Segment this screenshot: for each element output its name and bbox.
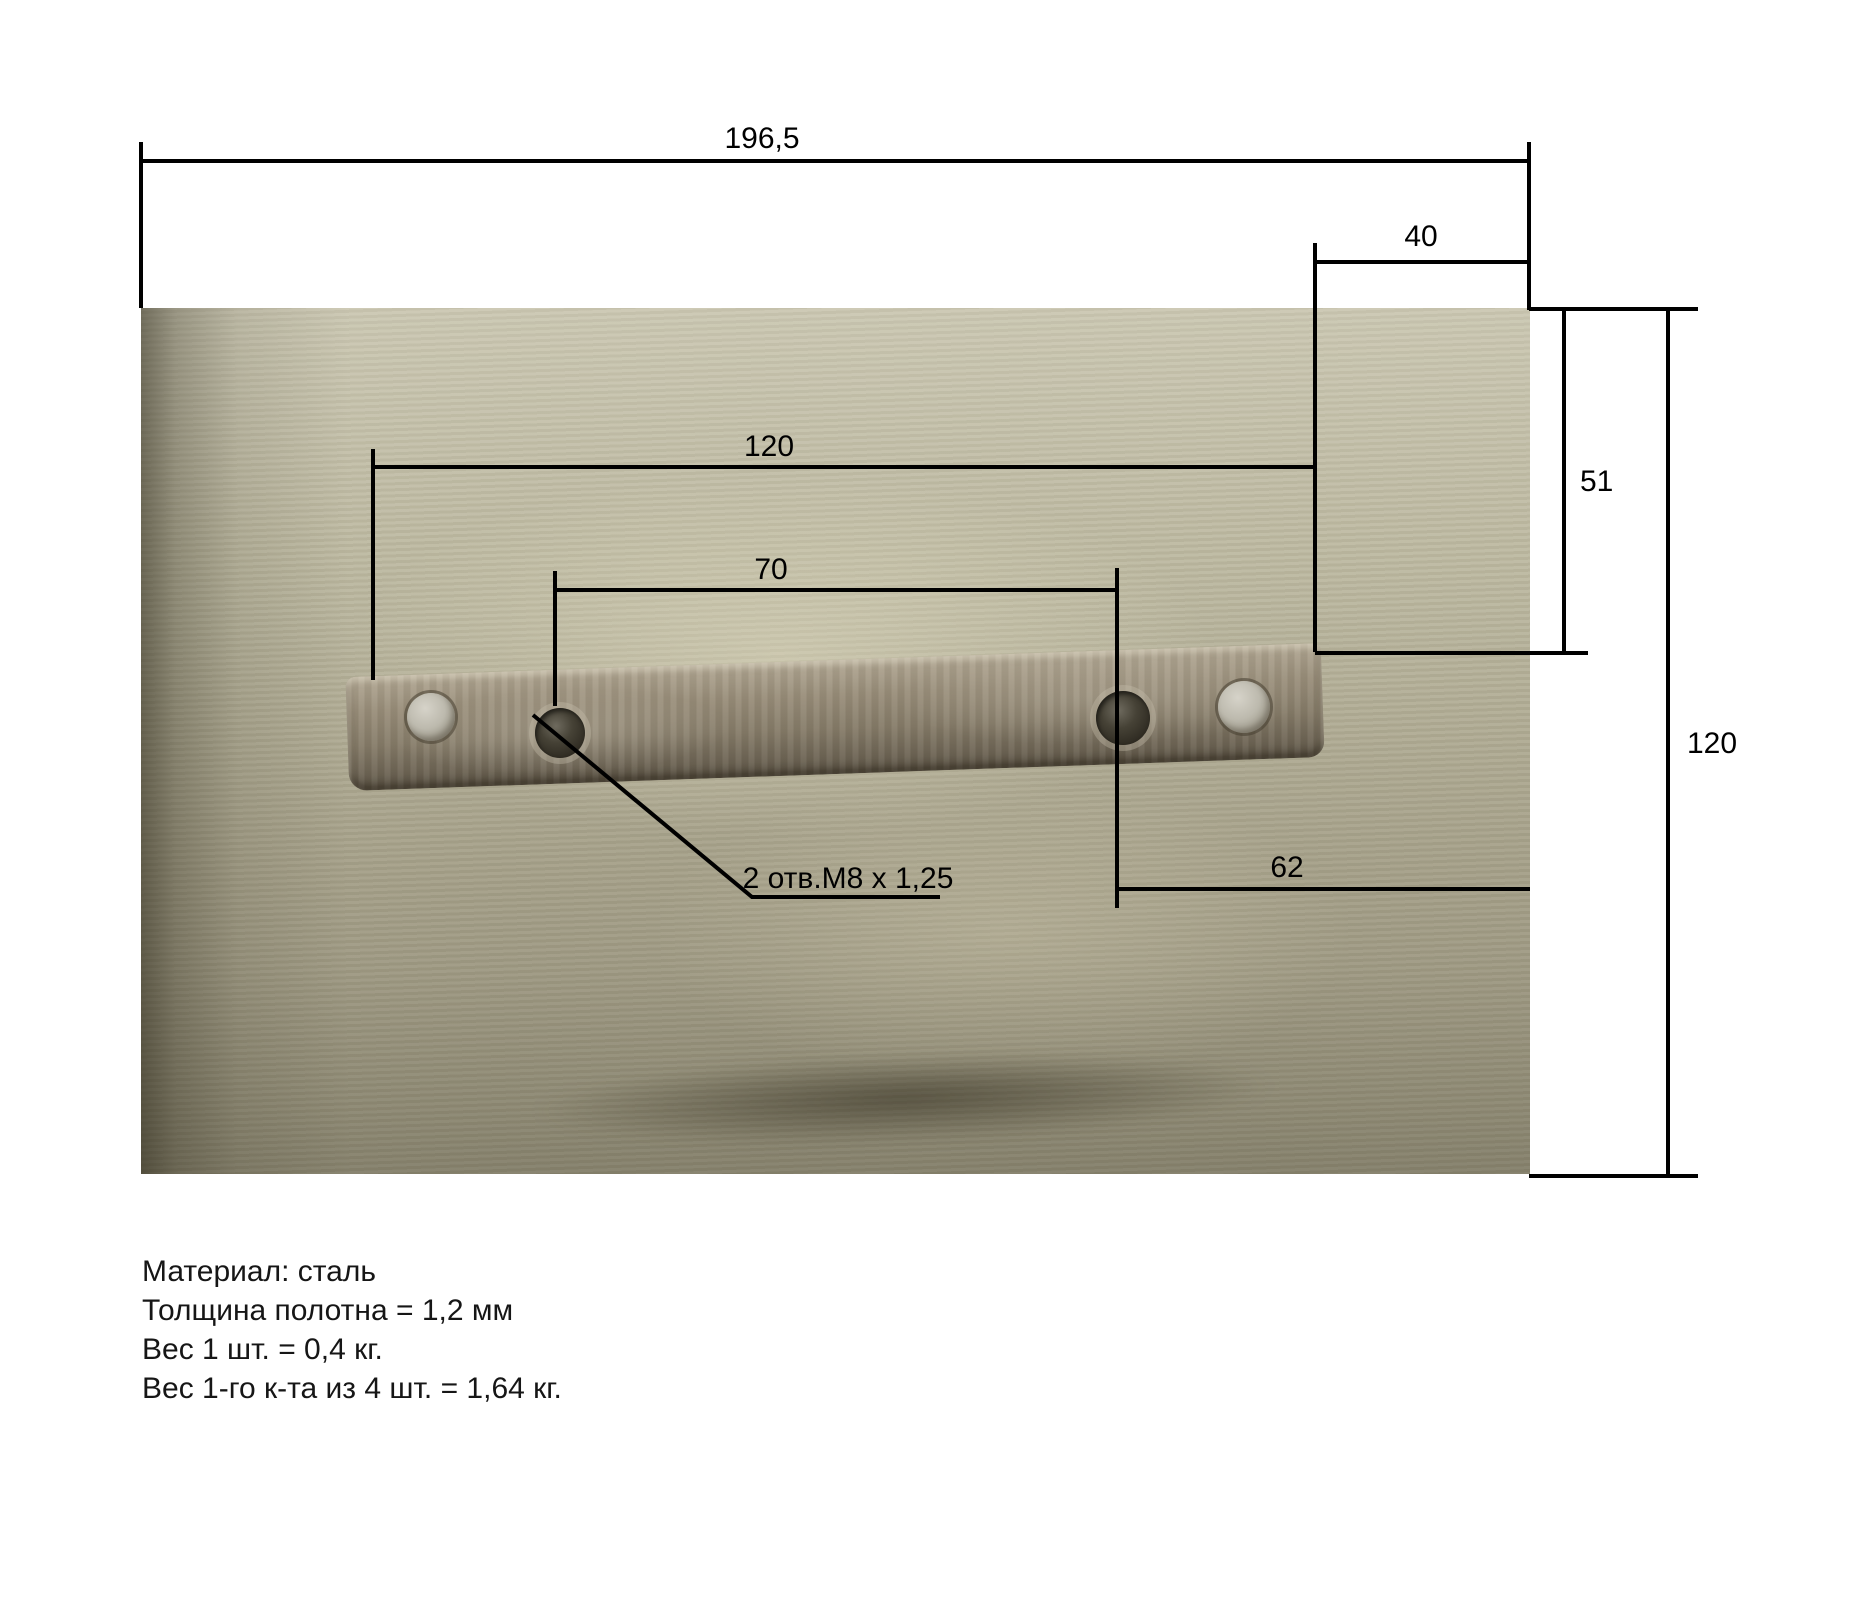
leader-label: 2 отв.М8 х 1,25 [743, 862, 954, 895]
note-weight-single: Вес 1 шт. = 0,4 кг. [142, 1330, 562, 1369]
dim-total-width-label: 196,5 [724, 122, 799, 155]
dim-total-width: 196,5 [141, 122, 1529, 310]
note-material: Материал: сталь [142, 1252, 562, 1291]
dim-hole-spacing: 70 [555, 553, 1117, 908]
dim-bar-length: 120 [373, 430, 1315, 680]
dim-right-offset-label: 40 [1404, 220, 1437, 253]
leader-callout: 2 отв.М8 х 1,25 [533, 715, 953, 897]
dim-hole-spacing-label: 70 [754, 553, 787, 586]
dim-hole-to-edge-label: 62 [1270, 851, 1303, 884]
note-thickness: Толщина полотна = 1,2 мм [142, 1291, 562, 1330]
dim-plate-height: 120 [1529, 309, 1737, 1176]
dim-bar-length-label: 120 [744, 430, 794, 463]
dim-plate-height-label: 120 [1687, 727, 1737, 760]
dim-top-to-bar-label: 51 [1580, 465, 1613, 498]
drawing-canvas: 196,5 40 120 70 51 120 [0, 0, 1872, 1620]
spec-notes: Материал: сталь Толщина полотна = 1,2 мм… [142, 1252, 562, 1408]
dim-right-offset: 40 [1315, 220, 1529, 652]
dim-hole-to-edge: 62 [1117, 851, 1530, 889]
note-weight-set: Вес 1-го к-та из 4 шт. = 1,64 кг. [142, 1369, 562, 1408]
dim-top-to-bar: 51 [1315, 309, 1698, 653]
